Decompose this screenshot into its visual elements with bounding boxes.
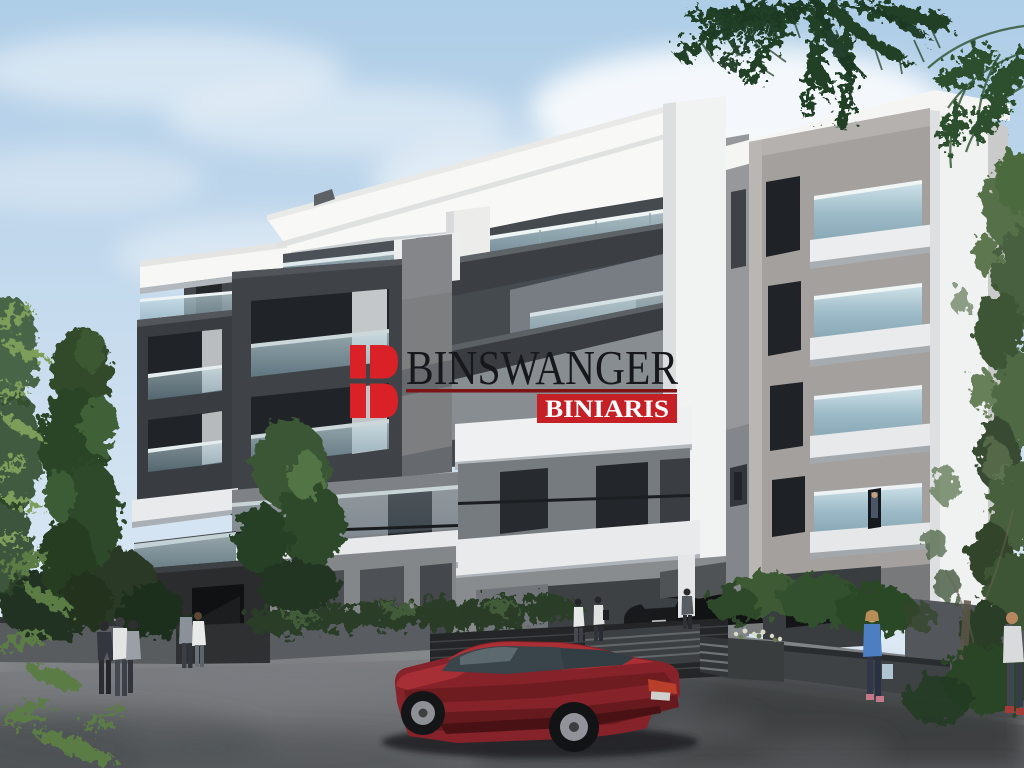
svg-text:BINIARIS: BINIARIS — [545, 396, 669, 423]
svg-text:BINSWANGER: BINSWANGER — [406, 340, 678, 395]
